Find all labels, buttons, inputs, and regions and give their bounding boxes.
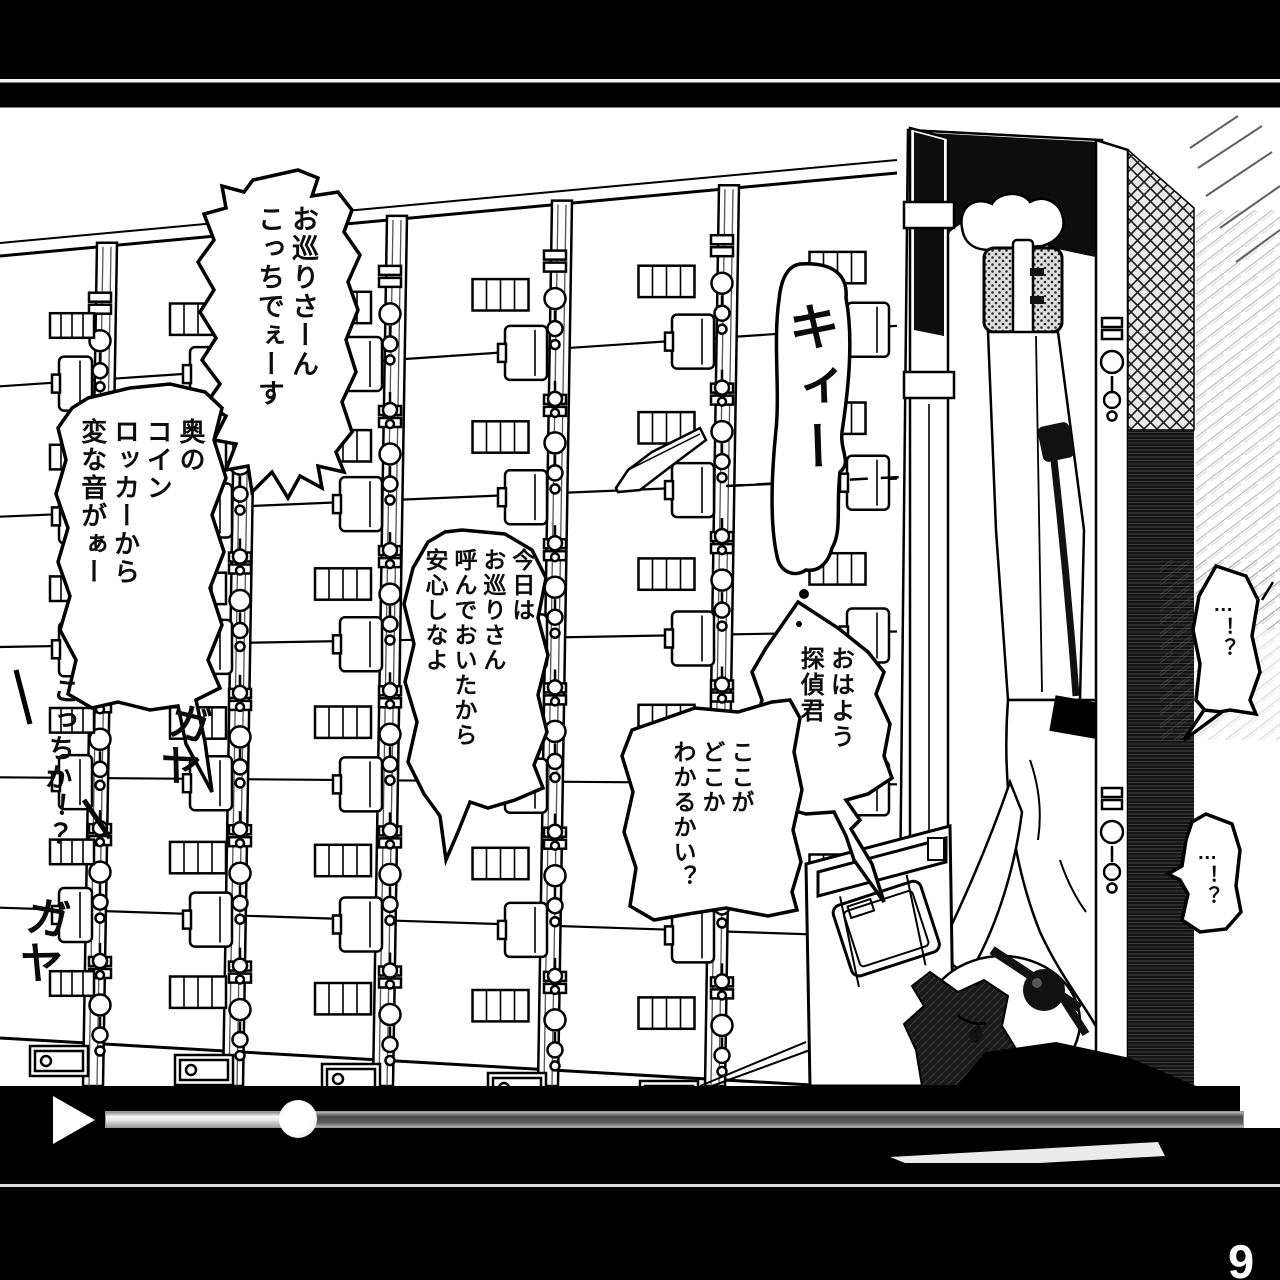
video-frame: お巡りさーん こっちでぇーす 奥の コイン ロッカーから 変な音がぁー 今日は … [0,0,1280,1280]
page-number: 9 [1228,1234,1255,1280]
locker-frame-post [1096,140,1128,1086]
sfx-creak-text: キィー [774,299,849,573]
seek-knob[interactable] [279,1100,317,1138]
player-bar-background [0,1086,1280,1184]
speech-bubble-text-cop-call: お巡りさーん こっちでぇーす [252,205,320,455]
ball-gag [1023,969,1065,1011]
speech-bubble-text-shock-1: …！？ [1210,594,1235,706]
speech-bubble-text-shock-2: …！？ [1194,842,1219,946]
play-icon[interactable] [53,1096,95,1144]
seek-bar[interactable] [105,1111,1244,1128]
speech-bubble-text-called-police: 今日は お巡りさん 呼んでおいたから 安心しなよ [420,548,536,794]
top-divider-line [0,79,1280,83]
speech-bubble-text-strange-noise: 奥の コイン ロッカーから 変な音がぁー [76,418,207,704]
speech-bubble-text-good-morning: おはよう 探偵君 [794,646,854,798]
progress-fill [106,1112,299,1127]
speech-bubble-text-where-is-this: ここが どこか わかるかい？ [668,740,755,916]
bottom-divider-line [0,1184,1280,1187]
